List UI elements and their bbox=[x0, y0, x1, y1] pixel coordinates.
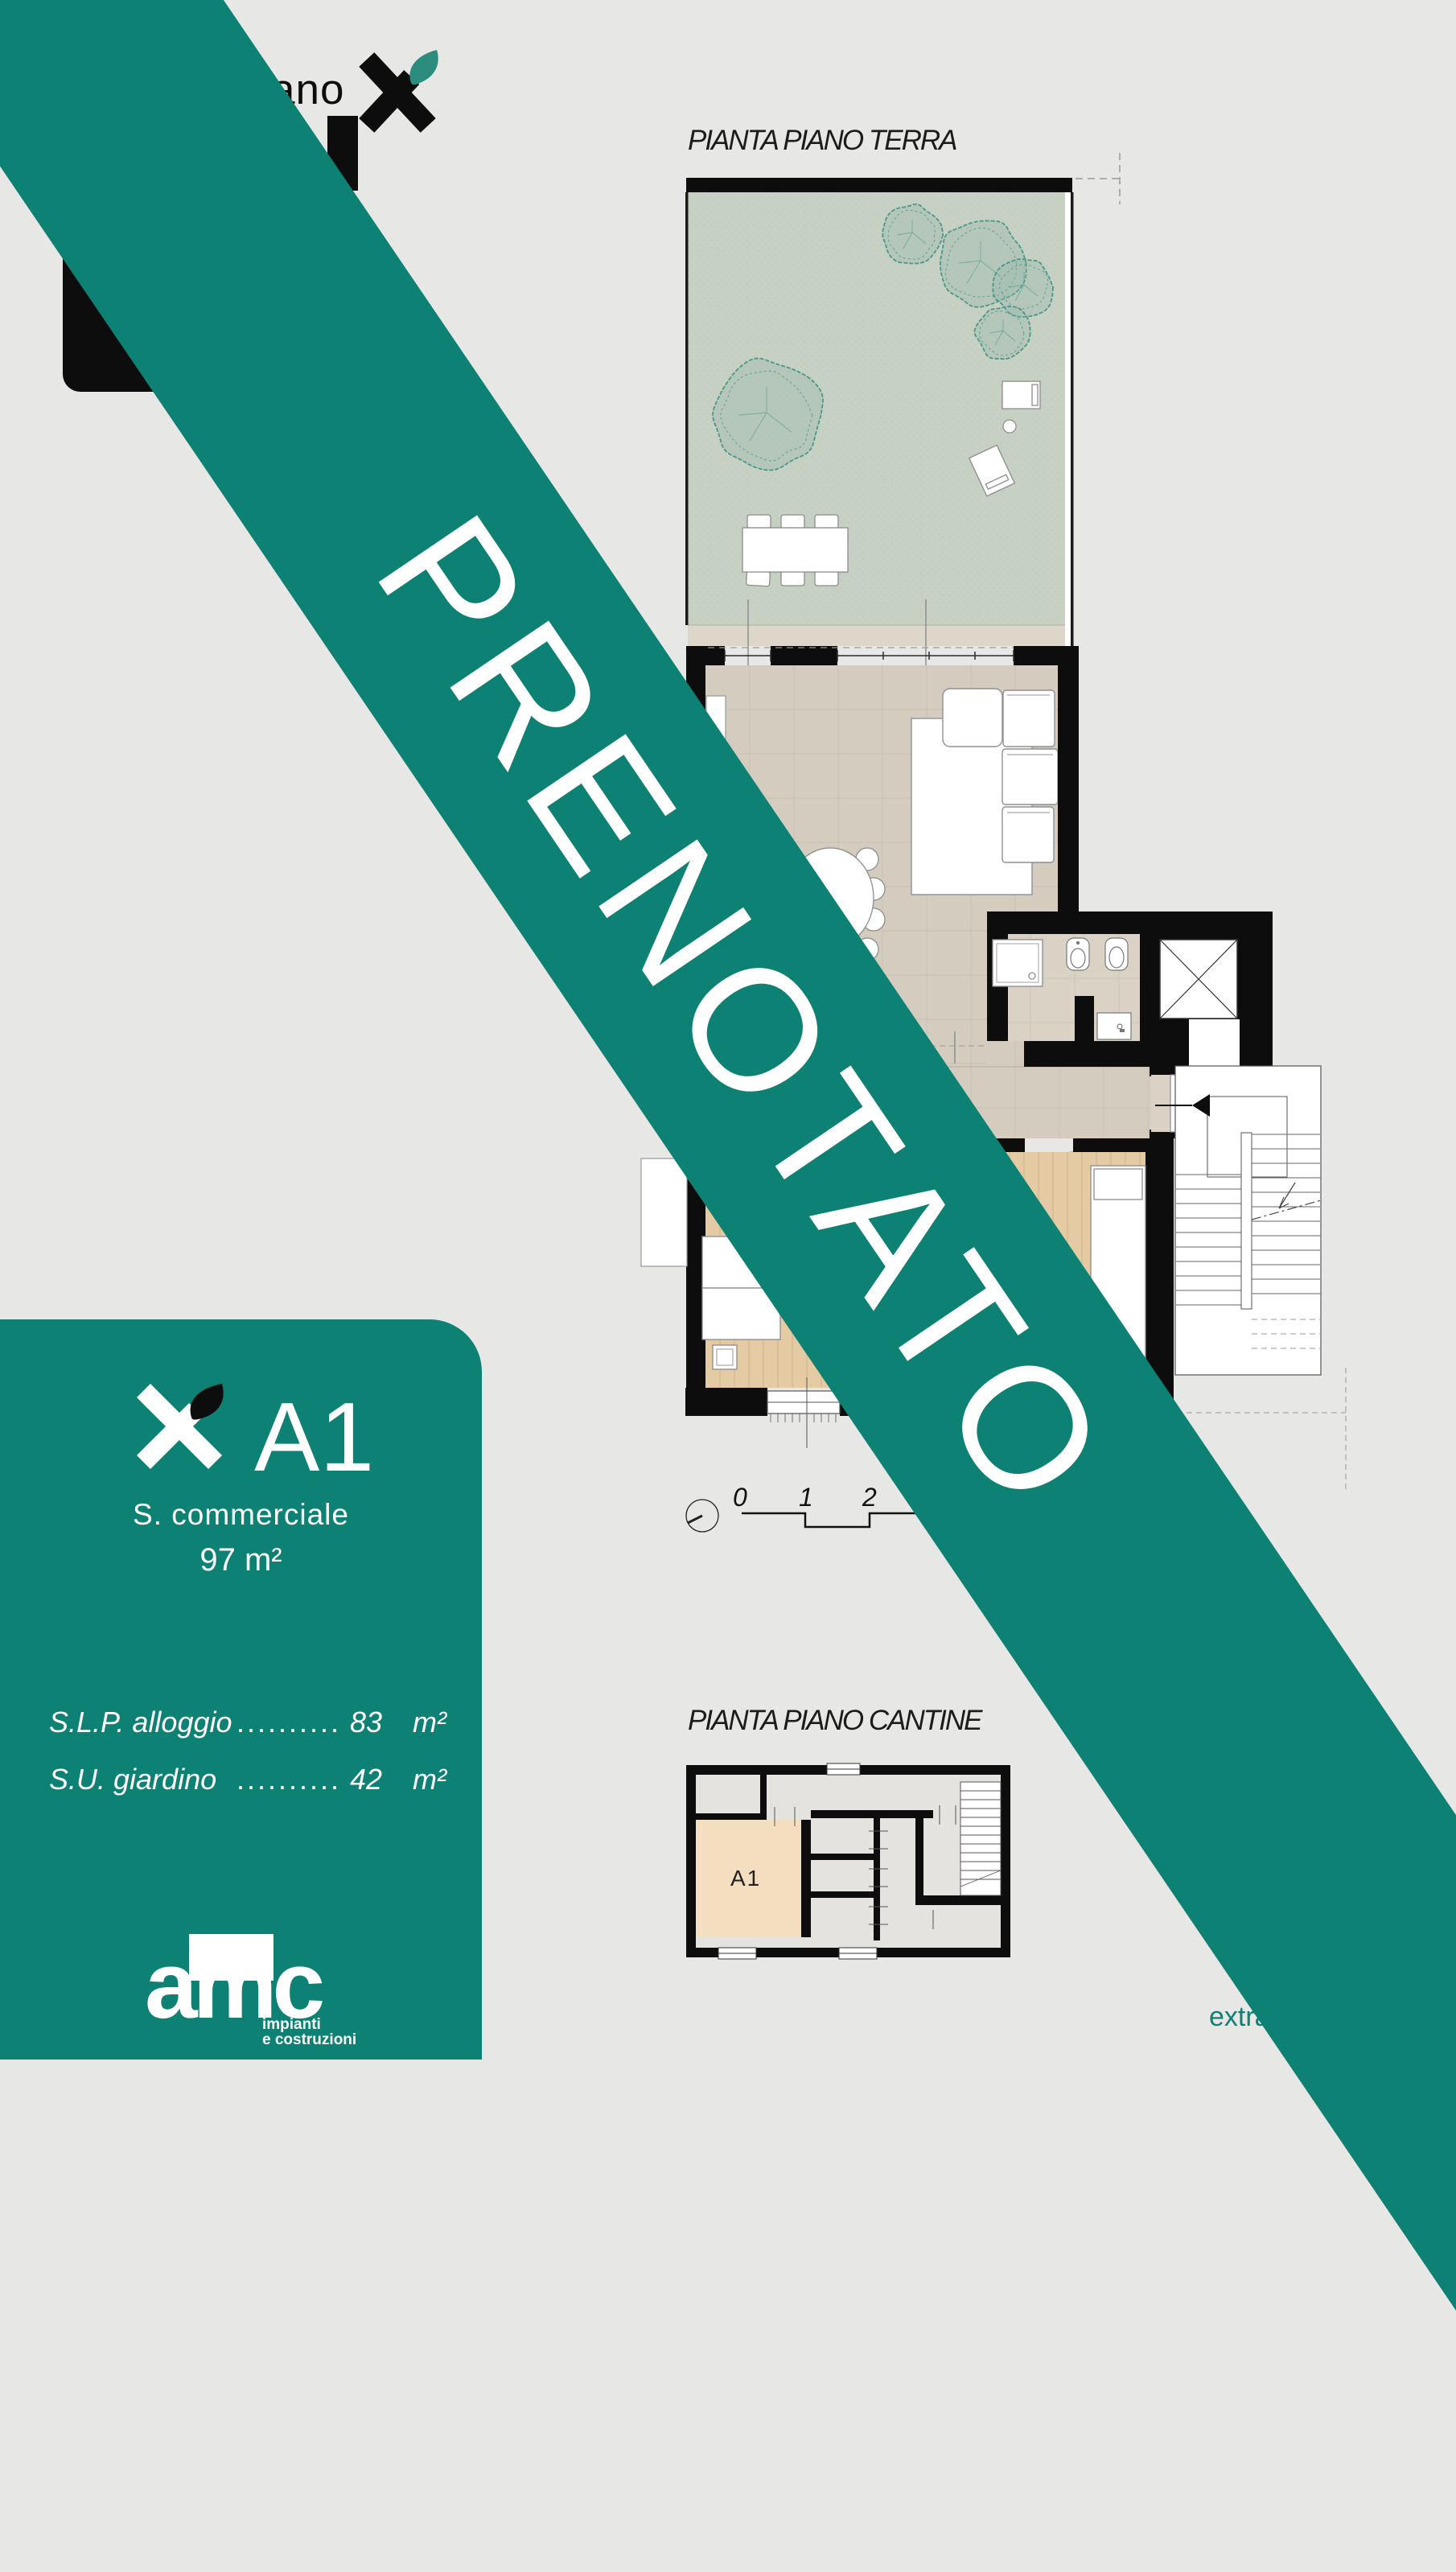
svg-text:1: 1 bbox=[799, 1483, 813, 1512]
svg-text:PIANTA PIANO TERRA: PIANTA PIANO TERRA bbox=[688, 125, 956, 156]
svg-text:impianti: impianti bbox=[262, 2016, 321, 2033]
svg-text:PIANTA PIANO CANTINE: PIANTA PIANO CANTINE bbox=[688, 1705, 983, 1736]
svg-text:0: 0 bbox=[733, 1483, 747, 1512]
svg-text:e costruzioni: e costruzioni bbox=[262, 2031, 356, 2048]
svg-text:2: 2 bbox=[862, 1483, 877, 1512]
svg-text:A1: A1 bbox=[730, 1866, 761, 1891]
